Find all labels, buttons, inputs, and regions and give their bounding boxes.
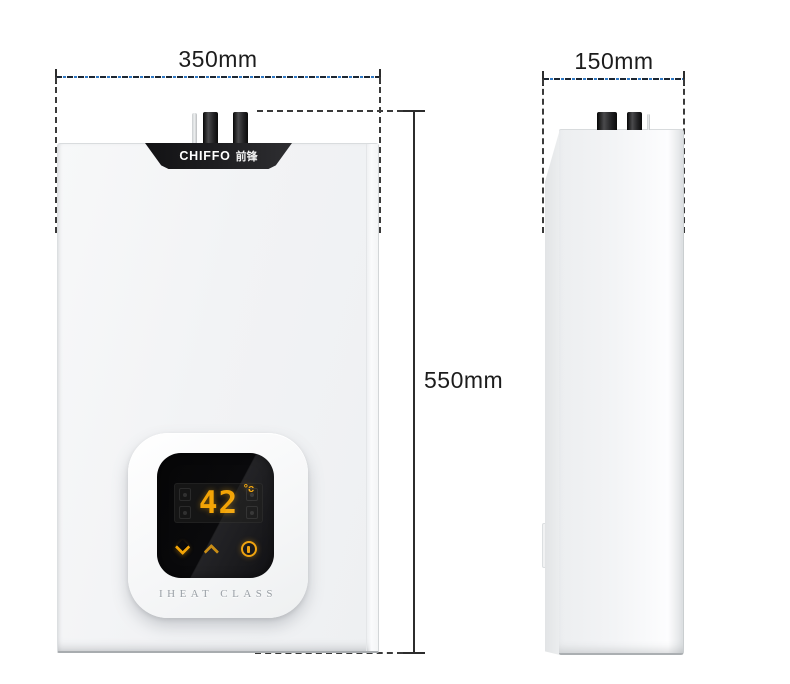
heater-side-view [559, 129, 684, 655]
extension-line [379, 77, 381, 233]
heater-side-back-face [545, 129, 560, 655]
brand-cap: CHIFFO 前锋 [145, 143, 292, 169]
brand-logo: CHIFFO [179, 149, 230, 163]
brand-logo-chinese: 前锋 [236, 148, 258, 164]
product-dimension-diagram: 350mm 150mm 550mm CHIFFO 前锋 [0, 0, 790, 684]
extension-line [542, 79, 544, 233]
flue-pipe [233, 112, 248, 145]
height-dimension-line [413, 111, 415, 653]
flue-pipe [203, 112, 218, 145]
extension-line [257, 110, 403, 112]
series-label: IHEAT CLASS [128, 588, 308, 600]
height-dimension-label: 550mm [424, 367, 534, 394]
front-side-edge-highlight [366, 144, 378, 651]
water-pipe [647, 114, 650, 130]
water-pipe [192, 113, 197, 145]
flue-pipe [627, 112, 642, 130]
flue-pipe [597, 112, 617, 130]
width-dimension-label: 350mm [140, 46, 296, 73]
screen-glass-reflection [157, 453, 274, 578]
control-panel: 42 °c IHEAT CLASS [128, 433, 308, 618]
width-dimension-line [56, 76, 380, 78]
depth-dimension-line [543, 78, 684, 80]
control-screen: 42 °c [157, 453, 274, 578]
depth-dimension-label: 150mm [536, 48, 692, 75]
